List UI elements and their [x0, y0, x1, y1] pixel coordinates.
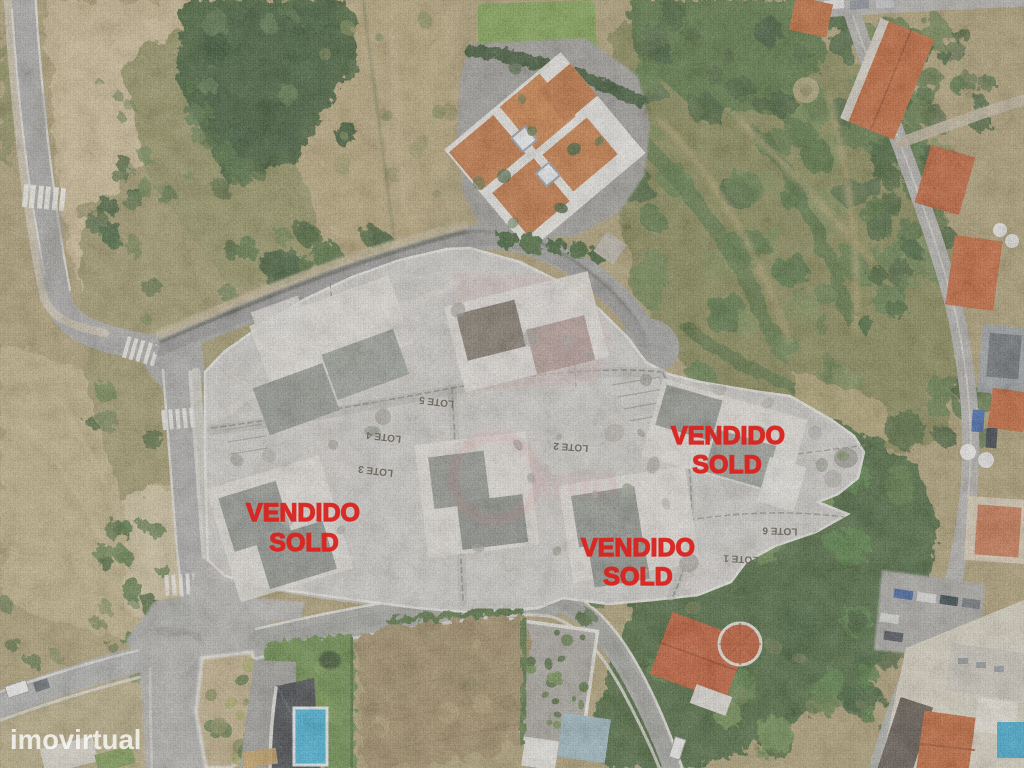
- svg-text:LOTE 6: LOTE 6: [762, 524, 798, 536]
- svg-text:imovirtual: imovirtual: [10, 724, 141, 755]
- svg-text:VENDIDO: VENDIDO: [581, 534, 695, 562]
- svg-text:LOTE 1: LOTE 1: [723, 552, 759, 565]
- svg-text:SOLD: SOLD: [692, 451, 761, 479]
- svg-text:VENDIDO: VENDIDO: [246, 499, 360, 527]
- svg-text:SOLD: SOLD: [269, 529, 338, 557]
- svg-text:SOLD: SOLD: [603, 563, 672, 591]
- svg-text:VENDIDO: VENDIDO: [671, 422, 785, 450]
- svg-text:imo: imo: [540, 459, 618, 508]
